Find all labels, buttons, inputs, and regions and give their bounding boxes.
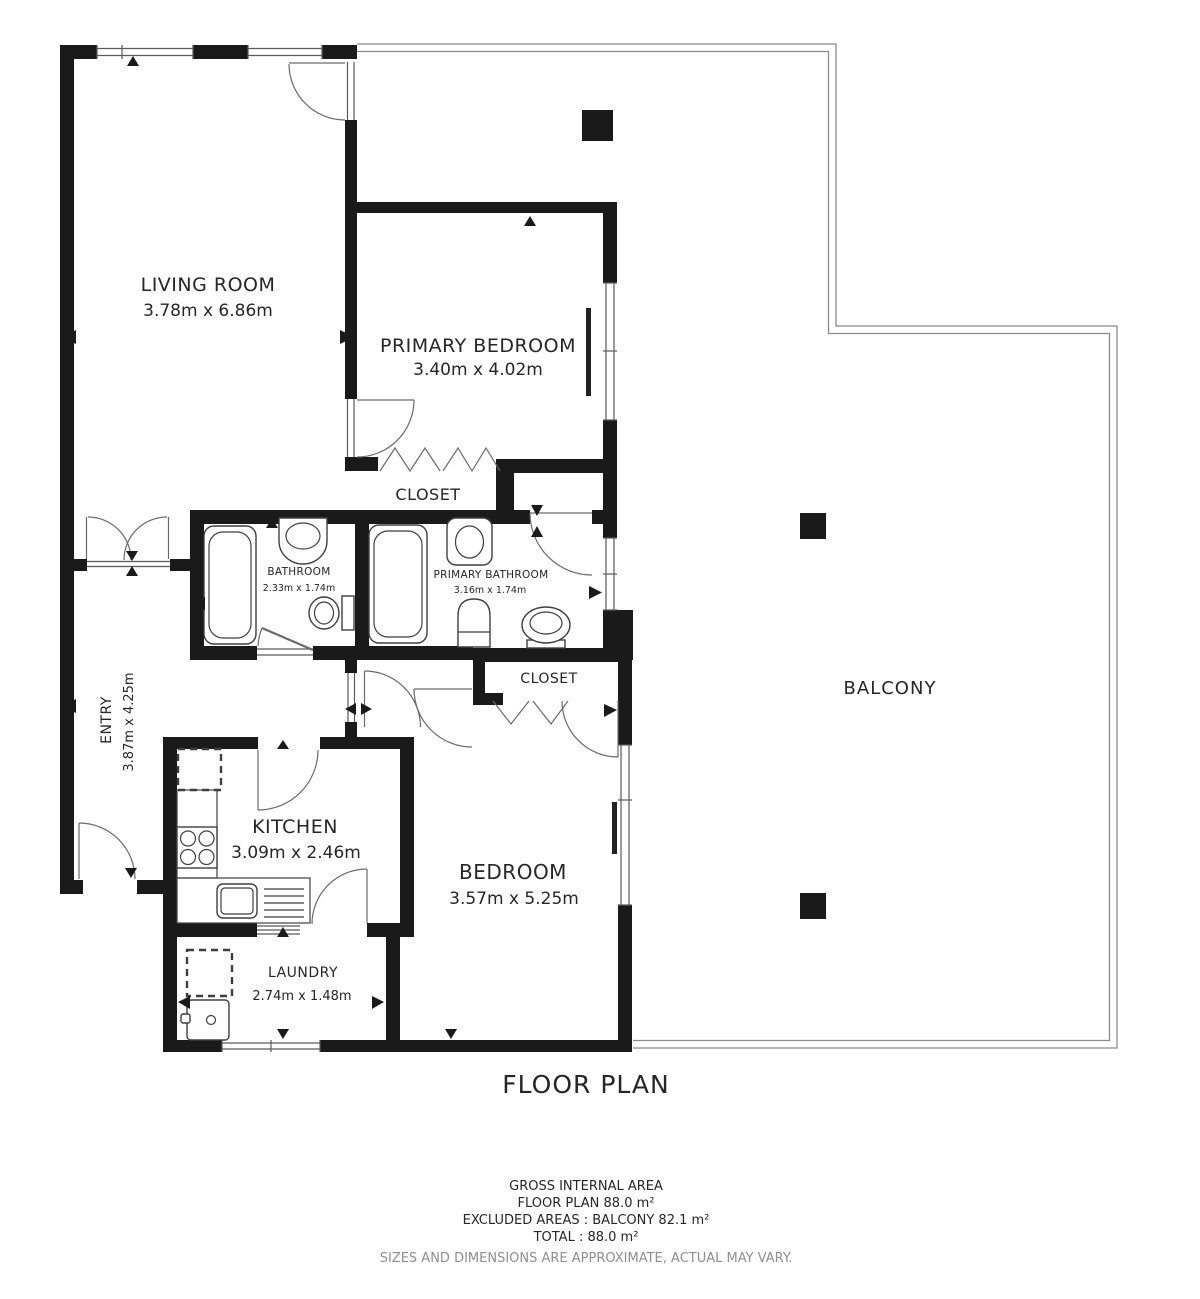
bedroom-label: BEDROOM [459, 860, 567, 884]
laundry-dims: 2.74m x 1.48m [252, 989, 351, 1004]
door-bedroom [414, 689, 472, 747]
bedroom-dims: 3.57m x 5.25m [449, 889, 579, 909]
footer-gross-internal-area: GROSS INTERNAL AREA [509, 1179, 663, 1194]
door-primary-bedroom [348, 399, 415, 457]
primary-bathroom-dims: 3.16m x 1.74m [454, 585, 526, 596]
bifold-primary-closet [380, 448, 440, 471]
pillar [800, 893, 826, 919]
annotations: FLOOR PLAN GROSS INTERNAL AREA FLOOR PLA… [380, 1070, 793, 1266]
floor-plan-drawing: LIVING ROOM 3.78m x 6.86m PRIMARY BEDROO… [0, 0, 1200, 1299]
door-kitchen-top [258, 750, 318, 810]
stove [177, 827, 217, 868]
pillar [800, 513, 826, 539]
primary-closet-label: CLOSET [395, 485, 460, 504]
bathtub [204, 526, 256, 644]
footer-total: TOTAL : 88.0 m² [533, 1230, 639, 1245]
primary-bedroom-label: PRIMARY BEDROOM [380, 335, 576, 357]
laundry-label: LAUNDRY [268, 965, 338, 981]
entry-label: ENTRY [99, 696, 115, 744]
fixtures [177, 518, 570, 1040]
window-laundry [222, 1040, 320, 1052]
entry-dims: 3.87m x 4.25m [122, 672, 137, 771]
pillar [582, 110, 613, 141]
sliding-panel [612, 802, 617, 854]
bathroom-label: BATHROOM [267, 566, 330, 578]
footer-excluded-areas: EXCLUDED AREAS : BALCONY 82.1 m² [463, 1213, 710, 1228]
door-living-balcony [289, 62, 354, 120]
sliding-panel [586, 308, 591, 396]
door-corridor [348, 671, 421, 727]
french-doors-living-entry [87, 517, 171, 567]
living-room-dims: 3.78m x 6.86m [143, 301, 273, 321]
kitchen-dims: 3.09m x 2.46m [231, 843, 361, 863]
page-title: FLOOR PLAN [502, 1070, 669, 1099]
toilet [522, 607, 570, 648]
footer-floor-plan-area: FLOOR PLAN 88.0 m² [518, 1196, 655, 1211]
refrigerator [178, 749, 221, 790]
floor-plan-page: LIVING ROOM 3.78m x 6.86m PRIMARY BEDROO… [0, 0, 1200, 1299]
bedroom-closet-label: CLOSET [520, 671, 577, 687]
window-living-1 [97, 45, 193, 59]
door-primary-bathroom [530, 513, 592, 575]
primary-bathroom-label: PRIMARY BATHROOM [434, 569, 549, 581]
door-kitchen-laundry [257, 869, 367, 934]
primary-bedroom-dims: 3.40m x 4.02m [413, 360, 543, 380]
balcony-label: BALCONY [844, 678, 937, 699]
sink [279, 518, 327, 564]
window-primary-bedroom [586, 283, 617, 420]
window-living-2 [248, 45, 322, 59]
window-bedroom [612, 745, 632, 905]
window-primary-bathroom [603, 538, 617, 610]
kitchen-sink [177, 878, 310, 923]
footer-disclaimer: SIZES AND DIMENSIONS ARE APPROXIMATE, AC… [380, 1251, 793, 1266]
bathroom-dims: 2.33m x 1.74m [263, 583, 335, 594]
toilet [309, 596, 354, 630]
sink [447, 518, 492, 565]
bathtub [369, 525, 427, 643]
appliance-space [187, 950, 232, 996]
living-room-label: LIVING ROOM [141, 274, 276, 296]
door-bathroom [257, 628, 313, 655]
kitchen-label: KITCHEN [252, 816, 338, 838]
pedestal-sink [458, 599, 490, 647]
bifold-primary-closet [443, 448, 500, 471]
